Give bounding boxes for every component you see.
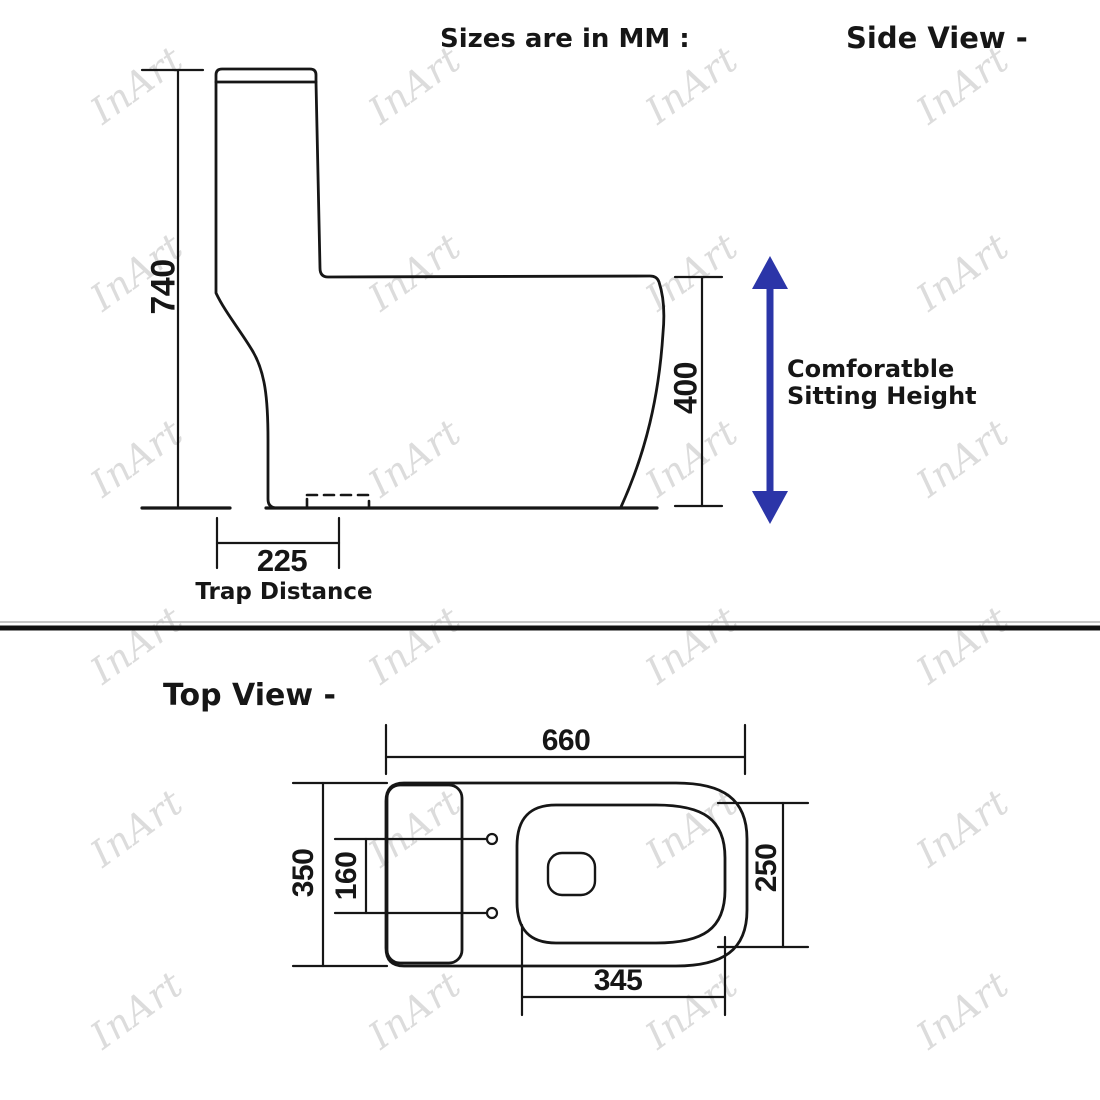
comfort-label-line2: Sitting Height	[787, 383, 977, 410]
dim-label-740-overall-height: 740	[145, 259, 184, 314]
bolt-hole-upper	[487, 834, 497, 844]
top-view-title: Top View -	[163, 678, 336, 713]
dim-label-345-seat-length: 345	[594, 964, 643, 998]
sitting-height-arrow	[752, 256, 788, 524]
tank-lid-outline	[216, 69, 316, 82]
arrow-head-up	[752, 256, 788, 289]
sizes-note-title: Sizes are in MM :	[440, 24, 690, 54]
section-divider	[0, 622, 1100, 628]
water-spot-outline	[548, 853, 595, 895]
dimension-diagram-page: InArtInArtInArtInArtInArtInArtInArtInArt…	[0, 0, 1100, 1100]
dim-label-400-sitting-height: 400	[668, 362, 705, 414]
trap-distance-label: Trap Distance	[195, 579, 372, 605]
side-view-title: Side View -	[846, 21, 1028, 55]
dim-label-160-bolt-spacing: 160	[330, 852, 364, 901]
tank-right-bowl-outline	[316, 82, 664, 507]
top-view-drawing	[335, 783, 747, 966]
dim-label-250-seat-width: 250	[750, 844, 784, 893]
bolt-hole-lower	[487, 908, 497, 918]
dim-label-660-overall-length: 660	[542, 724, 591, 758]
dim-label-350-overall-width: 350	[287, 849, 321, 898]
side-view-drawing	[142, 69, 664, 508]
dim-label-225-trap-distance: 225	[257, 543, 307, 579]
top-view-tank-outline	[387, 785, 462, 963]
side-view-dimensions	[142, 70, 722, 568]
arrow-head-down	[752, 491, 788, 524]
trap-dashed-outline	[307, 495, 369, 508]
line-art	[0, 0, 1100, 1100]
comfort-label-line1: Comforatble	[787, 356, 977, 383]
comfortable-sitting-height-label: Comforatble Sitting Height	[787, 356, 977, 410]
top-view-dimensions	[293, 725, 808, 1015]
tank-left-pedestal-outline	[216, 82, 277, 508]
